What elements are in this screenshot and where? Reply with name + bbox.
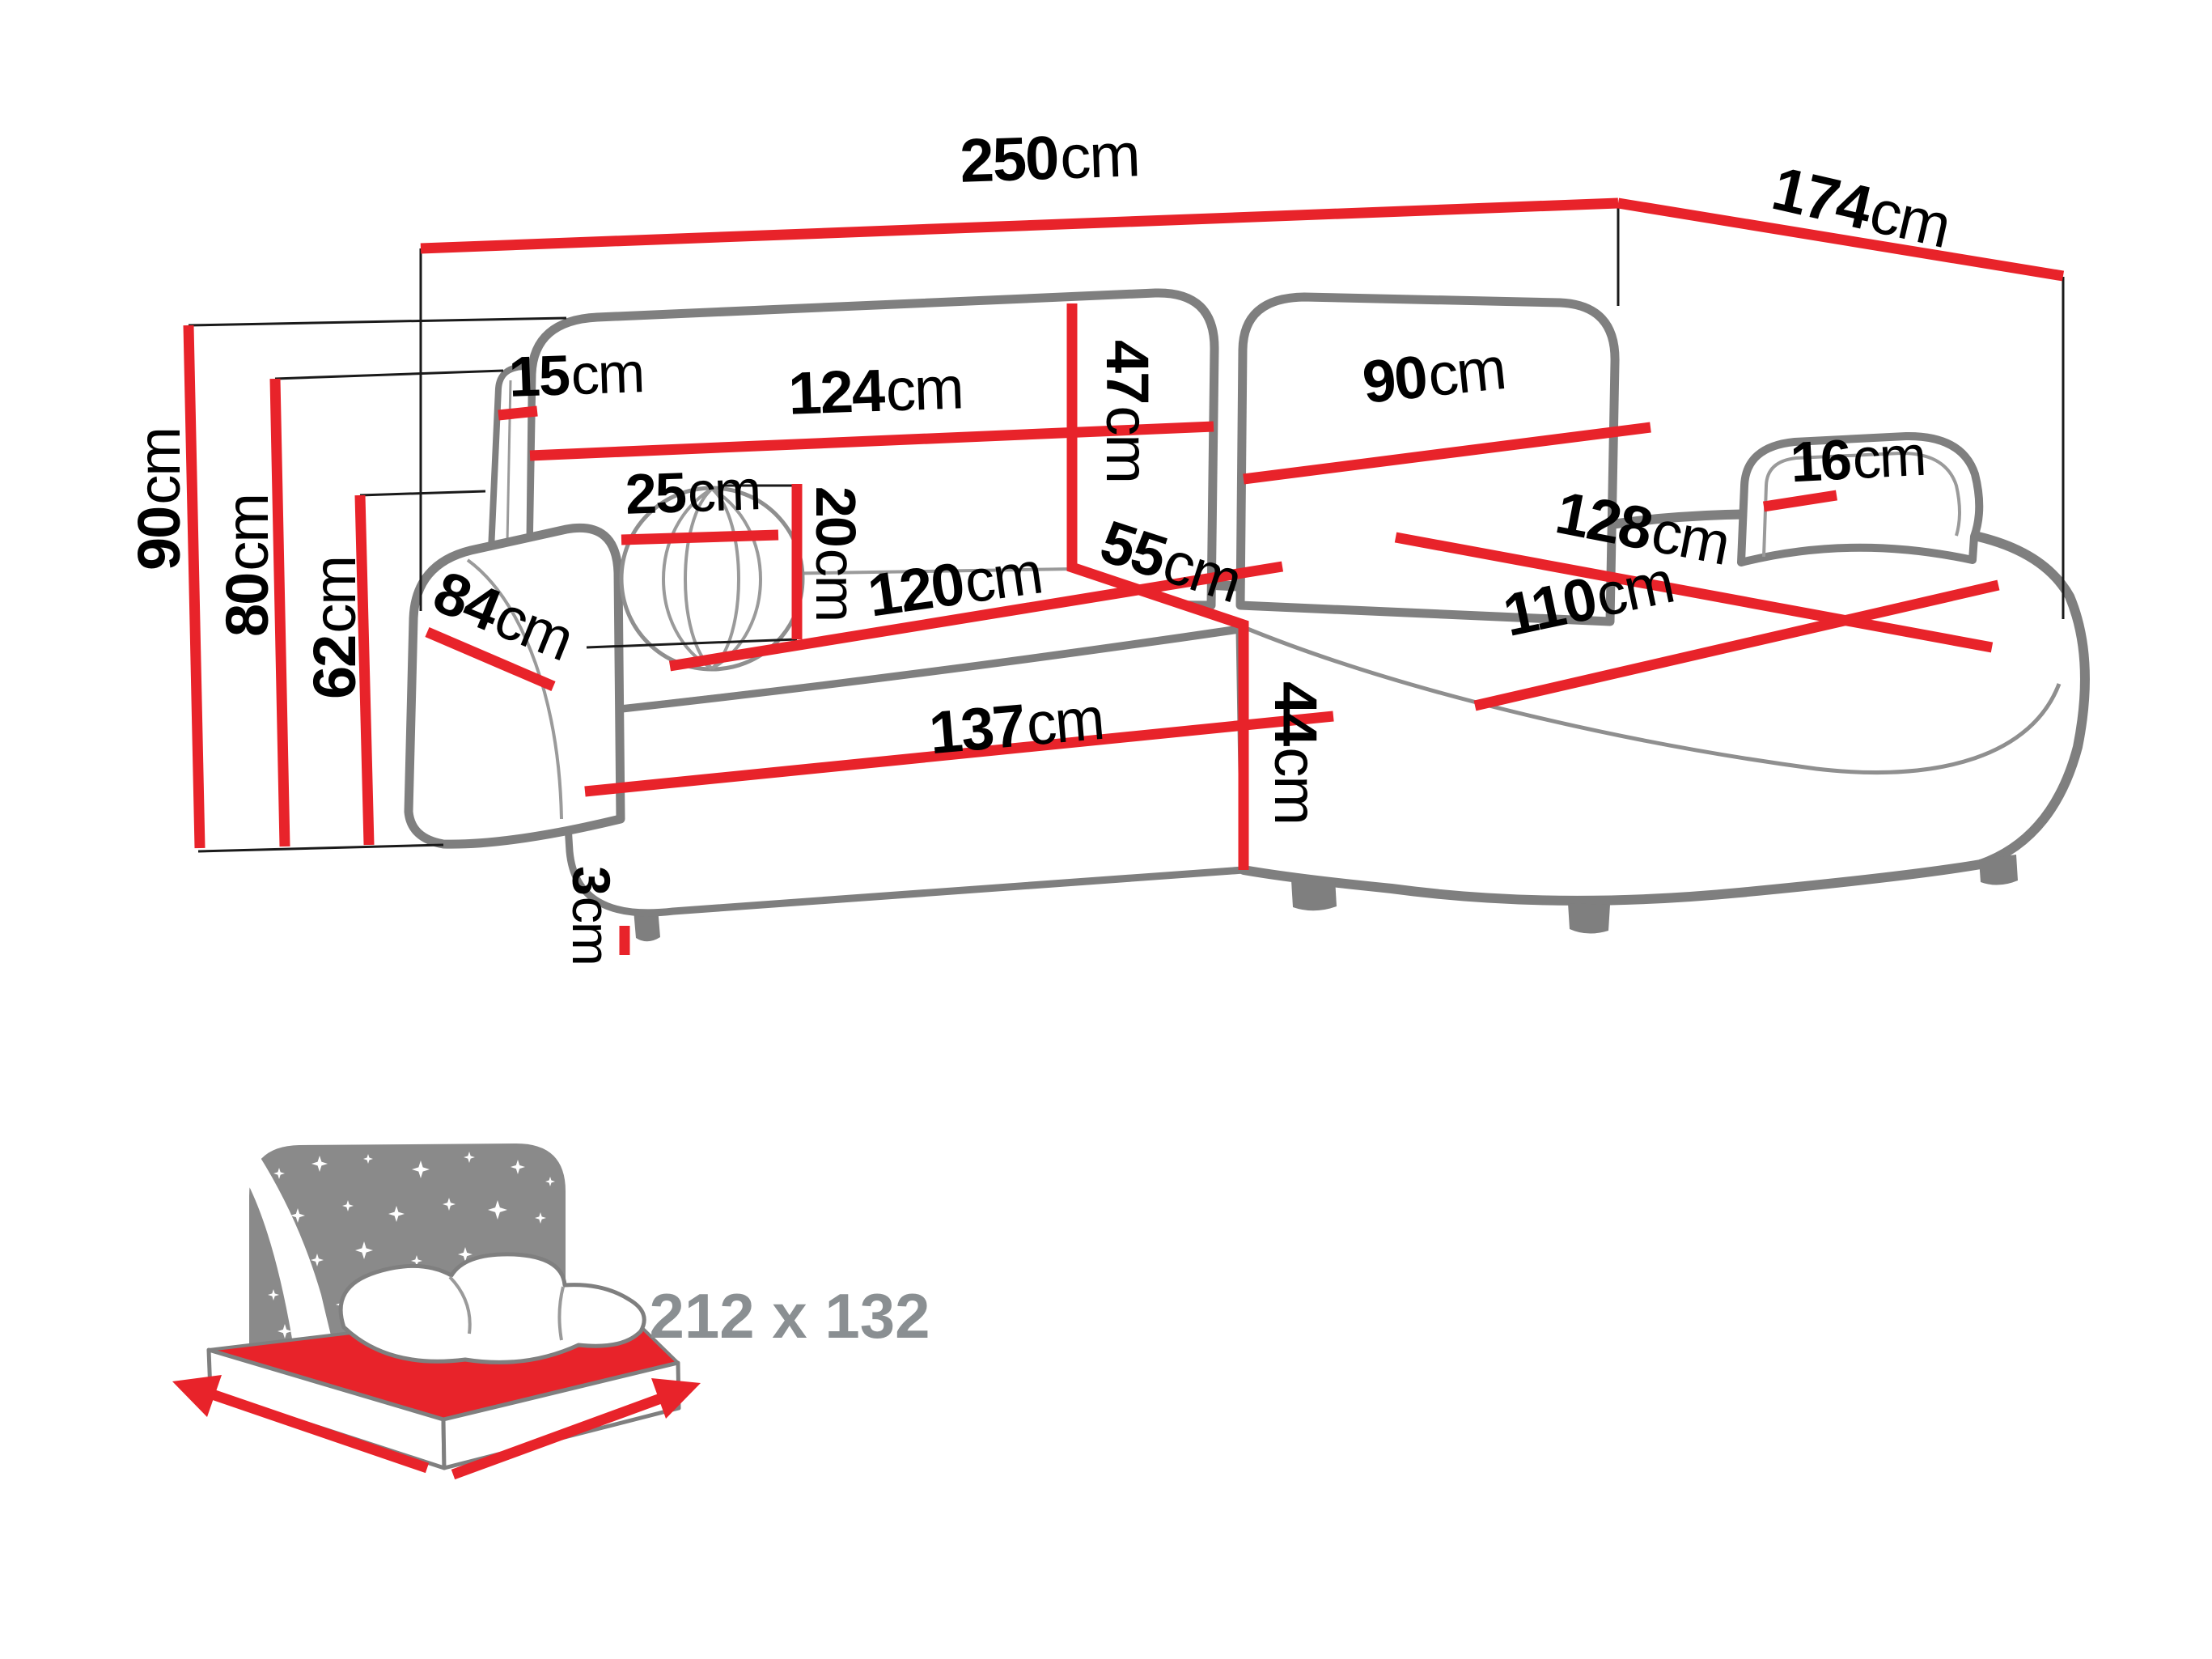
dim-armrest-height: 62cm	[305, 557, 365, 699]
dim-overall-width: 250cm	[959, 125, 1140, 193]
dim-armrest-right-width: 16cm	[1789, 427, 1926, 491]
dim-leg-height: 3cm	[565, 866, 618, 965]
pillows-icon	[341, 1254, 644, 1363]
dim-backrest-inner-height: 47cm	[1097, 340, 1157, 482]
dim-headrest-width: 15cm	[508, 344, 645, 405]
sofa-line-art	[0, 0, 2212, 1659]
dim-base-width: 137cm	[927, 689, 1106, 763]
dim-base-height: 44cm	[1265, 681, 1325, 824]
left-armrest	[409, 528, 621, 844]
sleeping-function-icon	[172, 1143, 701, 1474]
dim-pillow-diameter: 25cm	[625, 461, 761, 523]
dim-backrest-left-width: 124cm	[787, 358, 964, 423]
sleeping-area-label: 212 x 132	[649, 1284, 930, 1347]
diagram-canvas: 250cm 174cm 90cm 80cm 62cm 15cm 124cm 47…	[0, 0, 2212, 1659]
dim-backrest-right-width: 90cm	[1360, 338, 1508, 413]
dim-pillow-height: 20cm	[807, 486, 864, 621]
dim-backrest-height: 80cm	[218, 494, 278, 637]
dim-total-height: 90cm	[129, 428, 189, 571]
